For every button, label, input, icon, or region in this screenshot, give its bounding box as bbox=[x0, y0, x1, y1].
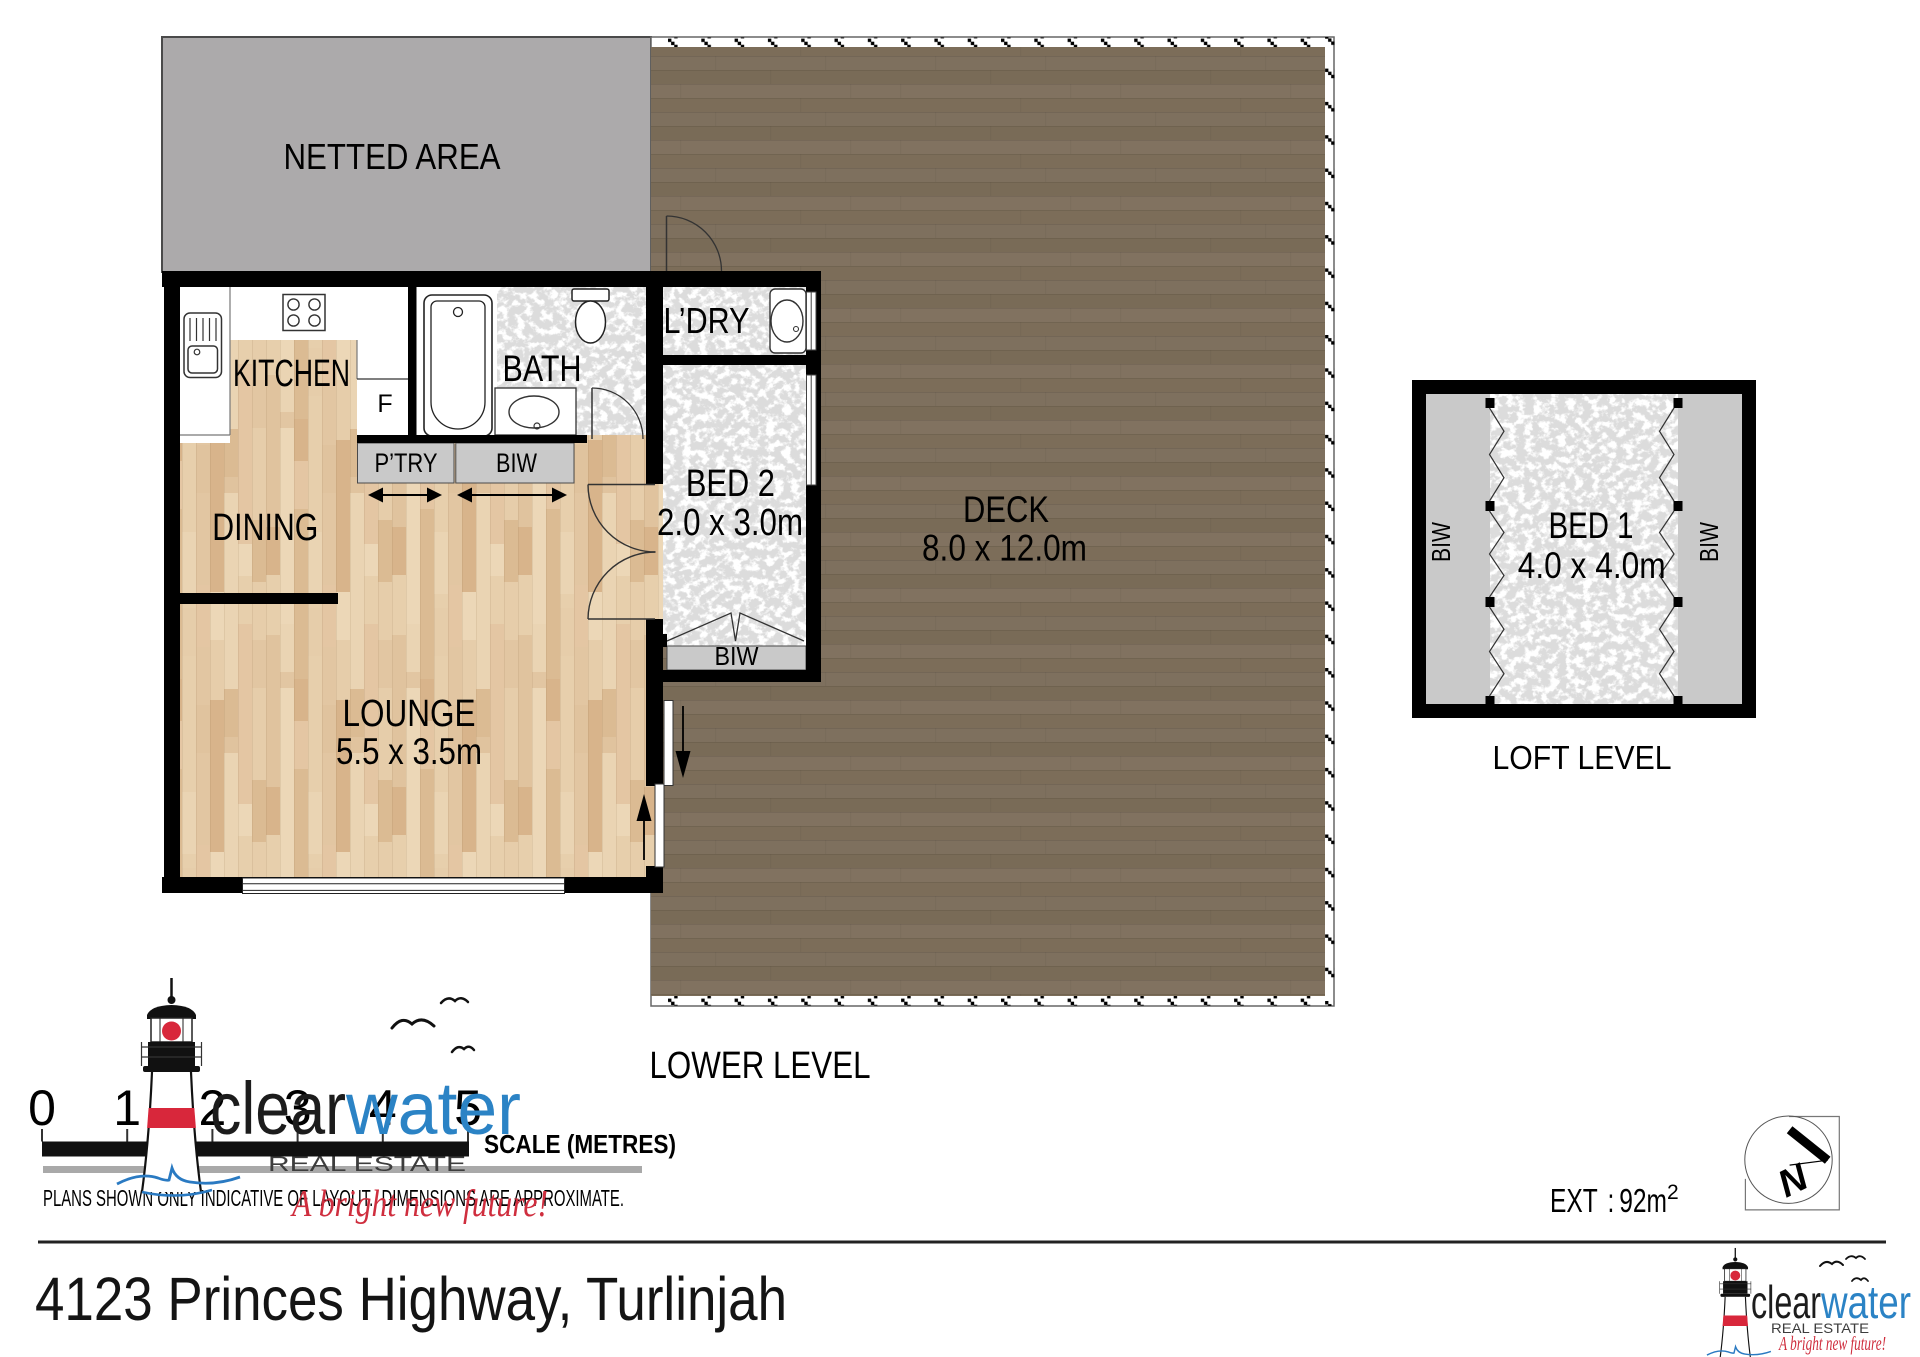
svg-text:2.0 x 3.0m: 2.0 x 3.0m bbox=[657, 502, 803, 544]
svg-text:1: 1 bbox=[113, 1080, 141, 1136]
svg-text:BIW: BIW bbox=[1694, 522, 1724, 562]
svg-text:LOUNGE: LOUNGE bbox=[343, 693, 476, 735]
svg-text:BIW: BIW bbox=[496, 448, 537, 478]
svg-text:water: water bbox=[345, 1067, 521, 1150]
svg-text:8.0 x 12.0m: 8.0 x 12.0m bbox=[922, 528, 1087, 569]
svg-text:4.0 x 4.0m: 4.0 x 4.0m bbox=[1518, 545, 1666, 586]
svg-text:KITCHEN: KITCHEN bbox=[233, 353, 350, 395]
svg-text:BIW: BIW bbox=[1426, 522, 1456, 562]
svg-text:NETTED AREA: NETTED AREA bbox=[284, 136, 501, 177]
svg-text:A bright new future!: A bright new future! bbox=[1778, 1333, 1886, 1355]
svg-text:2: 2 bbox=[1667, 1181, 1679, 1204]
svg-text:LOWER LEVEL: LOWER LEVEL bbox=[650, 1045, 871, 1087]
svg-text:LOFT LEVEL: LOFT LEVEL bbox=[1493, 739, 1672, 776]
svg-text:BIW: BIW bbox=[715, 641, 759, 671]
svg-text:0: 0 bbox=[28, 1080, 56, 1136]
svg-text:REAL ESTATE: REAL ESTATE bbox=[268, 1153, 466, 1176]
svg-text:BED 2: BED 2 bbox=[686, 463, 775, 505]
svg-text:A bright new future!: A bright new future! bbox=[289, 1183, 548, 1225]
svg-text:4123 Princes Highway, Turlinja: 4123 Princes Highway, Turlinjah bbox=[35, 1265, 787, 1333]
svg-text:DECK: DECK bbox=[963, 489, 1049, 530]
svg-text:P’TRY: P’TRY bbox=[375, 448, 438, 478]
svg-text:EXT : 92m: EXT : 92m bbox=[1550, 1182, 1667, 1219]
svg-text:5.5 x 3.5m: 5.5 x 3.5m bbox=[336, 731, 482, 772]
svg-text:DINING: DINING bbox=[212, 507, 318, 549]
svg-text:BATH: BATH bbox=[503, 348, 582, 389]
svg-text:F: F bbox=[377, 390, 392, 418]
svg-text:L’DRY: L’DRY bbox=[664, 300, 750, 341]
svg-text:BED 1: BED 1 bbox=[1549, 505, 1634, 546]
svg-text:clear: clear bbox=[210, 1067, 346, 1150]
